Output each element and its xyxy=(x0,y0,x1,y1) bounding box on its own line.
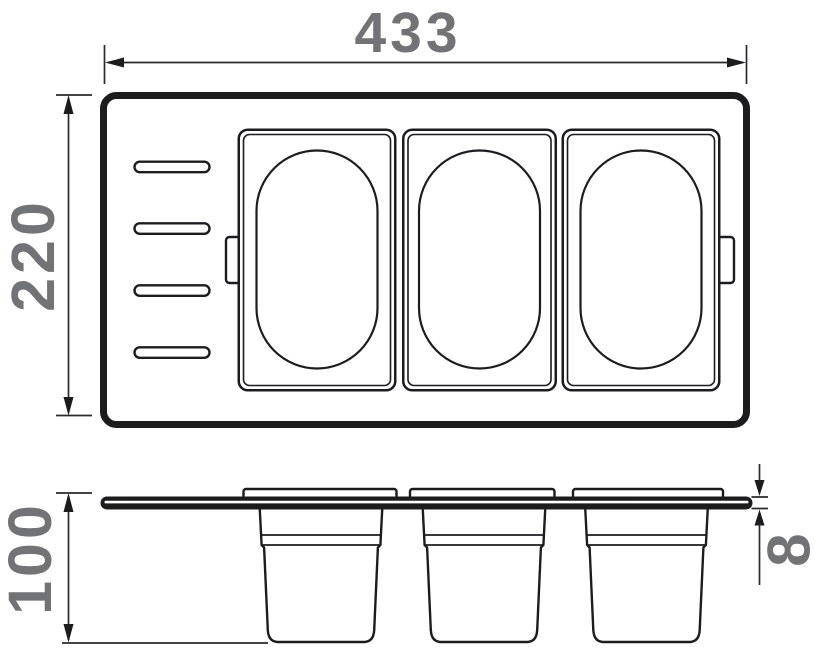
container-2 xyxy=(403,130,556,391)
plate-core-line xyxy=(105,501,749,504)
container-3-outer-rim xyxy=(563,130,720,391)
drain-slot-2 xyxy=(135,223,210,234)
plate-section xyxy=(101,497,753,510)
dimension-width-label: 433 xyxy=(354,1,461,65)
arrowhead-up xyxy=(755,510,765,526)
drain-slot-4 xyxy=(135,347,210,358)
drawing-canvas: 433 220 100 8 xyxy=(0,0,820,656)
container-3 xyxy=(563,130,720,391)
drain-slot-3 xyxy=(135,285,210,296)
dimension-width: 433 xyxy=(105,1,747,84)
bin-3 xyxy=(585,504,708,642)
arrowhead-up xyxy=(64,95,74,114)
bin-1 xyxy=(260,504,383,642)
container-1-outer-rim xyxy=(239,130,396,391)
top-view xyxy=(104,96,747,425)
dimension-bin-height-label: 100 xyxy=(0,501,64,615)
arrowhead-down xyxy=(64,397,74,416)
container-1 xyxy=(239,130,396,391)
arrowhead-down xyxy=(755,480,765,496)
dimension-plate-thickness-label: 8 xyxy=(756,529,820,566)
arrowhead-right xyxy=(727,58,746,68)
dimension-plate-thickness: 8 xyxy=(752,464,820,585)
arrowhead-left xyxy=(105,58,124,68)
arrowhead-down xyxy=(64,624,74,643)
dimension-depth: 220 xyxy=(0,95,92,416)
side-view xyxy=(101,489,753,642)
drain-slot-1 xyxy=(135,162,210,173)
technical-drawing: 433 220 100 8 xyxy=(0,0,820,656)
container-2-outer-rim xyxy=(403,130,556,391)
dimension-bin-height: 100 xyxy=(0,493,268,643)
arrowhead-up xyxy=(64,493,74,512)
dimension-depth-label: 220 xyxy=(0,198,67,312)
bin-2 xyxy=(423,504,546,642)
